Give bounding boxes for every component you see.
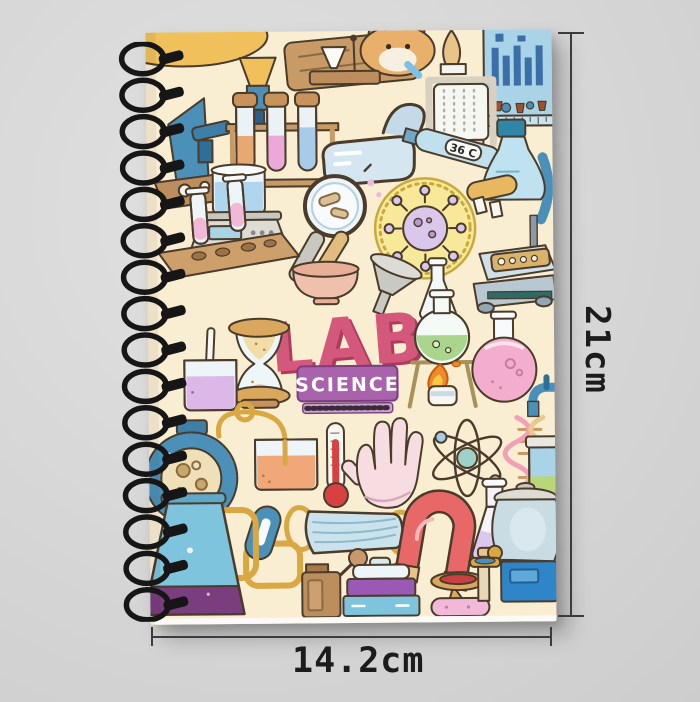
round-flask-icon	[472, 311, 537, 402]
hamster-icon	[360, 29, 434, 76]
mortar-pestle-icon	[292, 229, 359, 305]
notebook: 36 C	[145, 29, 556, 625]
width-dimension-tick-left	[151, 627, 153, 646]
lab-glove-icon	[339, 418, 423, 508]
width-dimension-label: 14.2cm	[292, 641, 424, 681]
width-dimension-tick-right	[550, 627, 552, 646]
height-dimension-label: 21cm	[577, 305, 617, 395]
sample-boxes-icon	[343, 557, 420, 616]
height-dimension-line	[570, 33, 572, 617]
product-photo: 36 C	[0, 0, 700, 702]
hot-plate-icon	[473, 245, 556, 313]
width-dimension-line	[152, 636, 551, 638]
cover-subtitle-badge: SCIENCE	[295, 366, 400, 414]
height-dimension-tick-bottom	[558, 615, 584, 617]
height-dimension-tick-top	[558, 32, 584, 34]
spiral-binding	[119, 41, 216, 622]
subtitle-text: SCIENCE	[295, 374, 400, 397]
